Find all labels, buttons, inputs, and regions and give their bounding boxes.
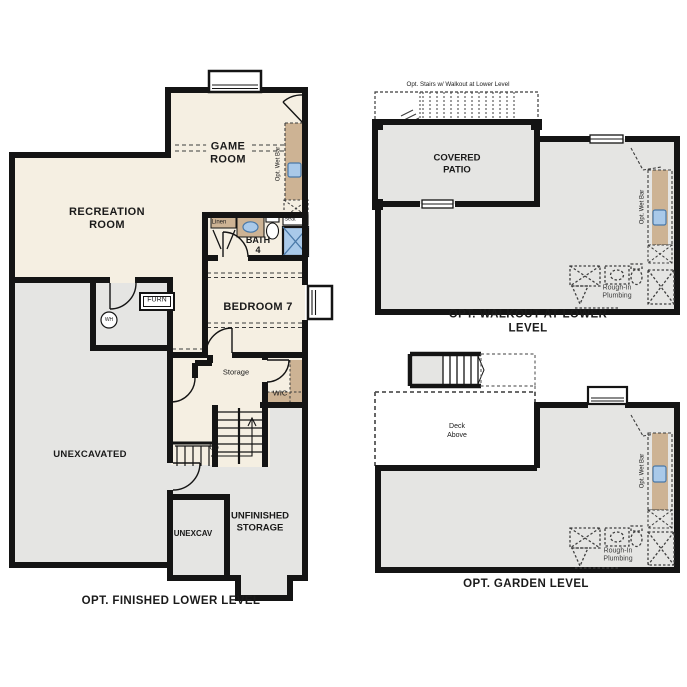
covered-patio-label: COVERED PATIO bbox=[434, 153, 481, 178]
water-heater-label: WH bbox=[105, 317, 113, 323]
deck-above-label: Deck Above bbox=[447, 422, 467, 440]
opt-wet-bar-label-1: Opt. Wet Bar bbox=[275, 147, 283, 182]
plan-finished-lower-level bbox=[5, 60, 340, 615]
opt-stairs-walkout-label: Opt. Stairs w/ Walkout at Lower Level bbox=[407, 81, 510, 89]
furnace-label: FURN bbox=[147, 297, 166, 306]
bath-4-label: BATH 4 bbox=[246, 236, 270, 256]
unfinished-storage-label: UNFINISHED STORAGE bbox=[231, 511, 289, 536]
game-room-label: GAME ROOM bbox=[206, 140, 250, 165]
linen-label: Linen bbox=[212, 219, 227, 227]
wic-label: WIC bbox=[273, 388, 288, 397]
up-label: Up bbox=[209, 442, 219, 451]
opt-wet-bar-label-3: Opt. Wet Bar bbox=[639, 454, 647, 489]
rough-in-plumbing-label-3: Rough-In Plumbing bbox=[603, 548, 632, 565]
opt-wet-bar-label-2: Opt. Wet Bar bbox=[639, 190, 647, 225]
room-fills bbox=[375, 125, 677, 312]
storage-label: Storage bbox=[223, 367, 249, 376]
bedroom-7-label: BEDROOM 7 bbox=[223, 301, 292, 315]
unexcavated-label: UNEXCAVATED bbox=[53, 449, 127, 461]
floorplan-sheet: GAME ROOM RECREATION ROOM Opt. Wet Bar L… bbox=[0, 0, 687, 687]
room-fills bbox=[378, 357, 677, 570]
finished-lower-caption: OPT. FINISHED LOWER LEVEL bbox=[82, 594, 261, 608]
garden-caption: OPT. GARDEN LEVEL bbox=[463, 577, 589, 591]
recreation-room-label: RECREATION ROOM bbox=[69, 206, 145, 232]
rough-in-plumbing-label-2: Rough-In Plumbing bbox=[602, 285, 631, 302]
unexcav-label: UNEXCAV bbox=[174, 529, 213, 539]
seat-label: Seat bbox=[284, 217, 295, 224]
walkout-caption: OPT. WALKOUT AT LOWER LEVEL bbox=[449, 308, 608, 337]
window-bump bbox=[588, 387, 627, 404]
